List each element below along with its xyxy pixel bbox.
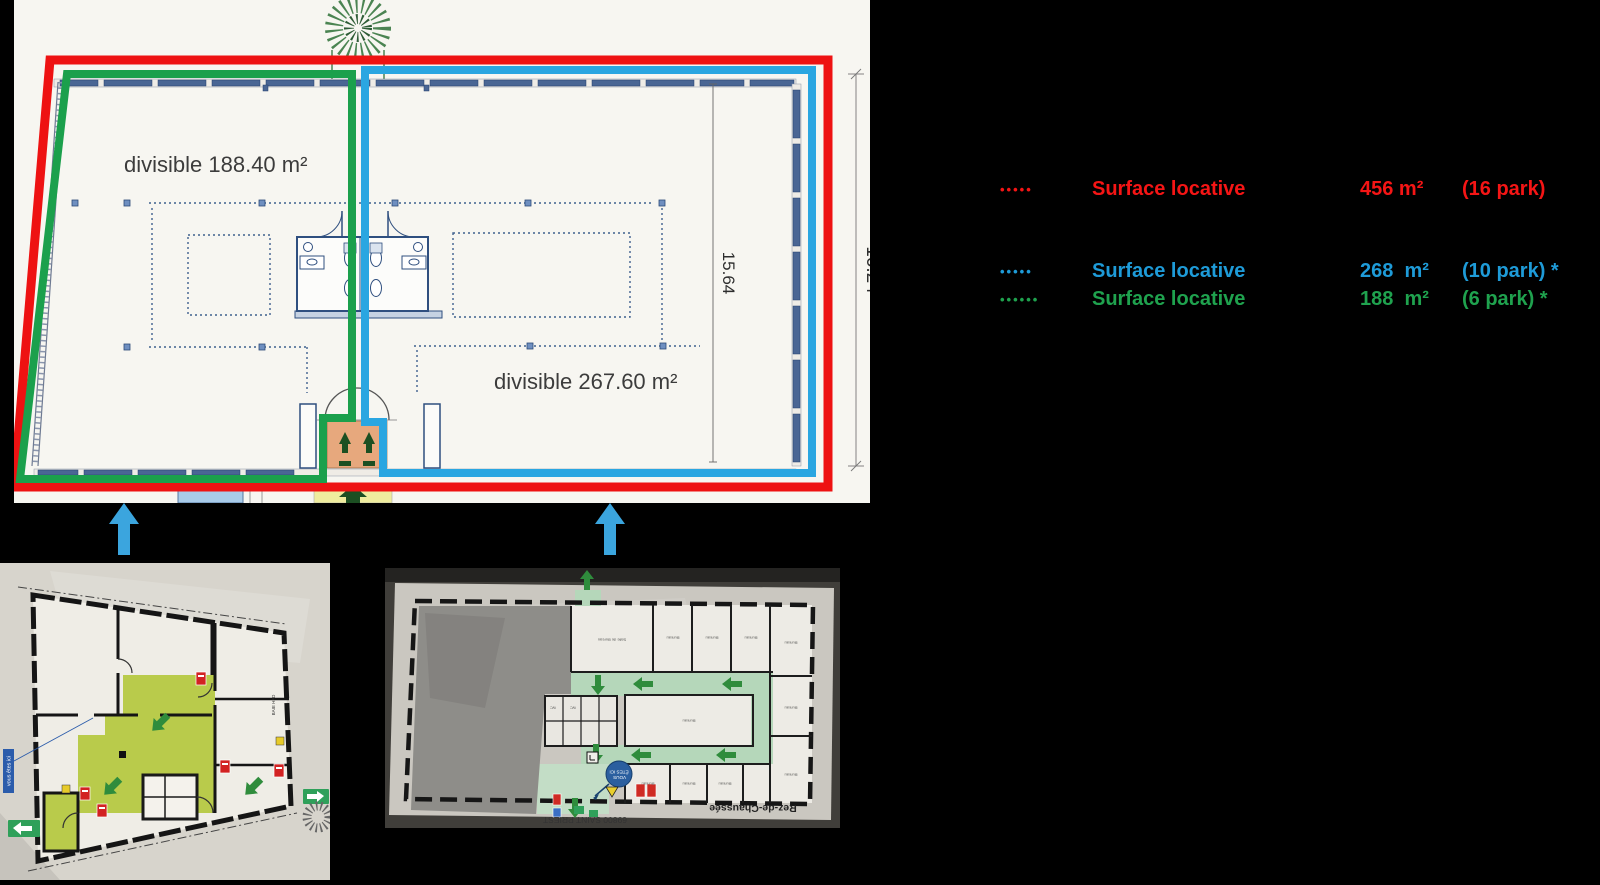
up-arrow-right-icon (595, 503, 625, 555)
legend-parking: (10 park) * (1462, 260, 1596, 283)
legend-label: Surface locative (1092, 288, 1360, 311)
interior-dim-label: 15.64 (719, 252, 738, 295)
legend-area: 188 m² (1360, 288, 1462, 311)
svg-text:Bureau: Bureau (785, 773, 798, 778)
salle-label: Salle de Bureau (598, 638, 626, 643)
svg-text:Bureau: Bureau (667, 636, 680, 641)
green-dotted-marker: •••••• (1000, 292, 1092, 307)
legend-row-blue: ••••• Surface locative 268 m² (10 park) … (1000, 258, 1596, 284)
floor-label: Rez-de-Chaussée (709, 802, 797, 814)
svg-text:Bureau: Bureau (719, 782, 732, 787)
red-dotted-marker: ••••• (1000, 182, 1092, 197)
floor-plan-drawing: 15.64 16.24 divisible 188.40 m² divisibl… (14, 0, 870, 503)
bay-label: BAIE HFD (271, 694, 276, 716)
exit-icon (574, 806, 584, 814)
legend-row-green: •••••• Surface locative 188 m² (6 park) … (1000, 286, 1596, 312)
blue-dotted-marker: ••••• (1000, 264, 1092, 279)
svg-text:Bureau: Bureau (785, 641, 798, 646)
svg-text:Bureau: Bureau (745, 636, 758, 641)
evacuation-plan-photo-right: VOUS ÊTES ICI Salle de Bureau Bureau Bur… (385, 568, 840, 828)
annex-room (44, 793, 78, 851)
wc-label: WC (550, 706, 556, 710)
evacuation-plan-2: VOUS ÊTES ICI Salle de Bureau Bureau Bur… (385, 568, 840, 828)
left-room-label: divisible 188.40 m² (124, 152, 307, 177)
wc-label: WC (570, 706, 576, 710)
svg-text:Bureau: Bureau (683, 782, 696, 787)
svg-text:vous êtes ici: vous êtes ici (7, 756, 13, 786)
east-window-wall (792, 84, 801, 466)
evacuation-plan-photo-left: vous êtes ici BAIE HFD (0, 563, 330, 880)
column-post (119, 751, 126, 758)
legend-label: Surface locative (1092, 178, 1360, 201)
legend-area: 456 m² (1360, 178, 1462, 201)
legend-parking: (6 park) * (1462, 288, 1596, 311)
legend-row-red: ••••• Surface locative 456 m² (16 park) (1000, 176, 1596, 202)
legend-parking: (16 park) (1462, 178, 1596, 201)
lt-icon (587, 752, 598, 763)
svg-text:Bureau: Bureau (785, 706, 798, 711)
svg-text:Bureau: Bureau (706, 636, 719, 641)
evacuation-plan-1: vous êtes ici BAIE HFD (0, 563, 330, 880)
svg-text:Bureau: Bureau (683, 719, 696, 724)
address-label: 69800 SAINT PRIEST (543, 815, 627, 825)
svg-text:VOUS ÊTES ICI: VOUS ÊTES ICI (609, 770, 628, 781)
legend-label: Surface locative (1092, 260, 1360, 283)
up-arrow-left-icon (109, 503, 139, 555)
floor-plan-scan: 15.64 16.24 divisible 188.40 m² divisibl… (14, 0, 870, 503)
legend-area: 268 m² (1360, 260, 1462, 283)
svg-text:Bureau: Bureau (642, 782, 655, 787)
marketing-slide: { "legend": { "rows": [ {"marker": "••••… (0, 0, 1600, 880)
yellow-safety-icon (62, 785, 70, 793)
yellow-safety-icon (276, 737, 284, 745)
right-room-label: divisible 267.60 m² (494, 369, 677, 394)
badge-line2: ÊTES ICI (609, 770, 628, 777)
badge-line1: VOUS (613, 775, 626, 780)
exterior-dim-label: 16.24 (862, 246, 870, 294)
